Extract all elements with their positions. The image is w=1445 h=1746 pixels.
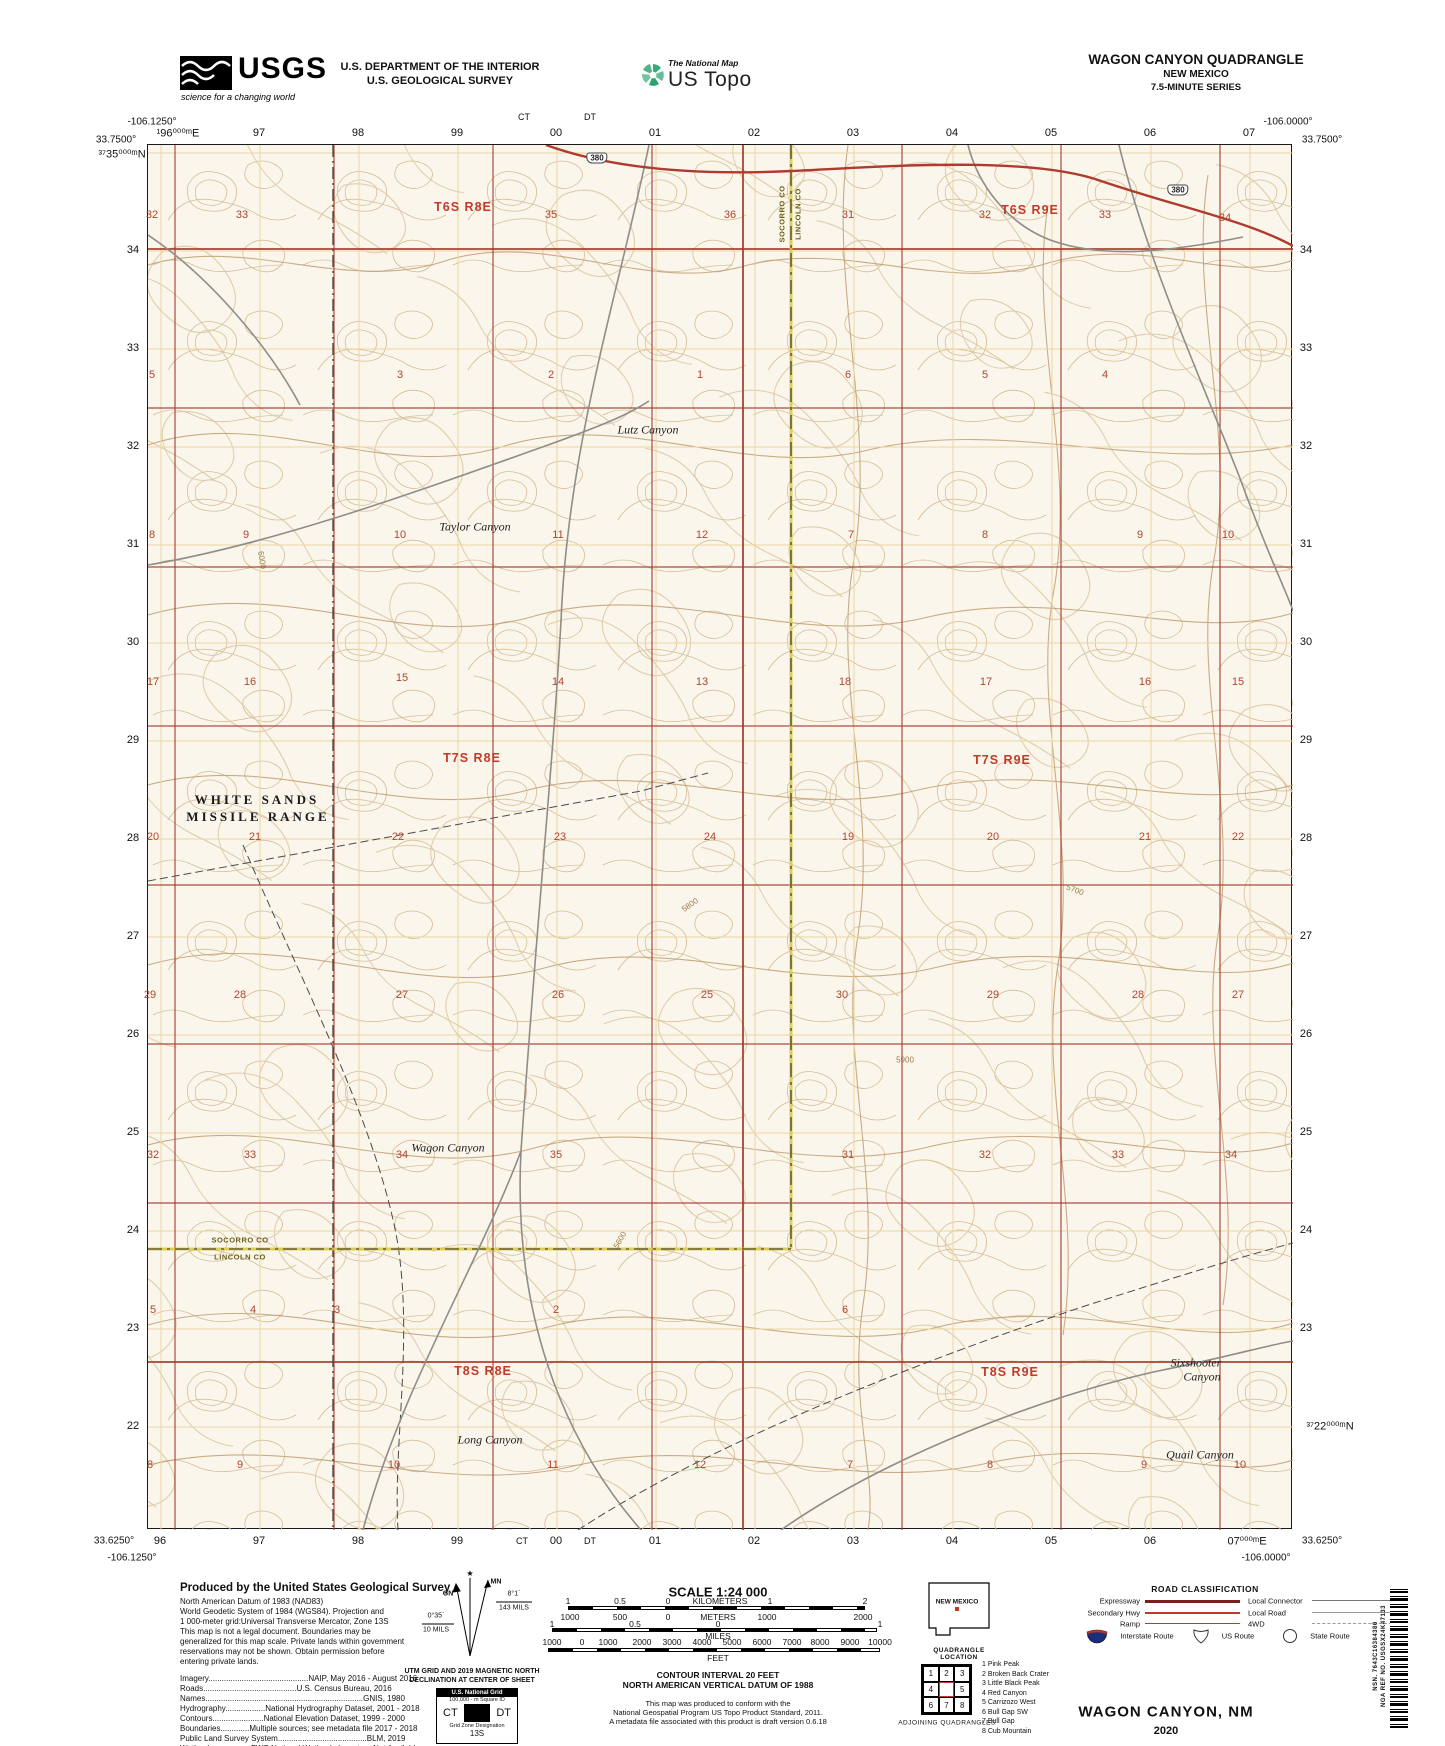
scale-ft-label: 0 bbox=[580, 1637, 585, 1647]
grid-label-bottom: 04 bbox=[946, 1535, 958, 1547]
us-route-label: US Route bbox=[1222, 1632, 1255, 1641]
scale-bar-feet bbox=[548, 1648, 880, 1652]
nsn-number: NSN. 7643C16384380 bbox=[1373, 1621, 1379, 1690]
grid-label-left: 31 bbox=[127, 538, 139, 550]
map-area bbox=[147, 144, 1292, 1529]
grid-label-left: 27 bbox=[127, 930, 139, 942]
scale-m-label: 1000 bbox=[561, 1612, 580, 1622]
vertical-datum-note: NORTH AMERICAN VERTICAL DATUM OF 1988 bbox=[623, 1680, 814, 1690]
grid-zone-id-bottom: CT bbox=[516, 1536, 528, 1546]
grid-label-top: 00 bbox=[550, 127, 562, 139]
usng-cell-ct: CT bbox=[437, 1707, 464, 1719]
scale-ft-label: 1000 bbox=[599, 1637, 618, 1647]
grid-label-right: 34 bbox=[1300, 244, 1312, 256]
us-route-shield-icon bbox=[1192, 1628, 1210, 1644]
mn-mils: 143 MILS bbox=[499, 1605, 529, 1612]
grid-label-bottom: 02 bbox=[748, 1535, 760, 1547]
road-classification-title: ROAD CLASSIFICATION bbox=[1151, 1584, 1259, 1594]
grid-label-right: 29 bbox=[1300, 734, 1312, 746]
nga-ref-number: NGA REF NO. USGSX24K47133 bbox=[1381, 1605, 1387, 1707]
quad-title-block: WAGON CANYON QUADRANGLE NEW MEXICO 7.5-M… bbox=[1046, 52, 1346, 93]
declination-diagram: ★ MN GN 0°35´ 10 MILS 8°1´ 143 MILS UTM … bbox=[392, 1568, 552, 1685]
agency-line2: U.S. GEOLOGICAL SURVEY bbox=[290, 74, 590, 88]
declination-arrows-icon: ★ bbox=[392, 1568, 552, 1660]
corner-coordinate: -106.1250° bbox=[127, 117, 176, 128]
grid-label-left: 33 bbox=[127, 342, 139, 354]
scale-ft-label: 3000 bbox=[663, 1637, 682, 1647]
grid-zone-id-bottom: DT bbox=[584, 1536, 596, 1546]
grid-label-bottom: 01 bbox=[649, 1535, 661, 1547]
local-connector-line bbox=[1312, 1600, 1392, 1601]
scale-km-label: 1 bbox=[566, 1596, 571, 1606]
scale-km-label: 2 bbox=[863, 1596, 868, 1606]
scale-mi-label: 1 bbox=[878, 1619, 883, 1629]
grid-label-right: 30 bbox=[1300, 636, 1312, 648]
national-map-pinwheel-icon bbox=[640, 62, 666, 88]
grid-label-left: 30 bbox=[127, 636, 139, 648]
usgs-tagline: science for a changing world bbox=[181, 92, 295, 102]
scale-ft-label: 6000 bbox=[753, 1637, 772, 1647]
quad-state: NEW MEXICO bbox=[1046, 69, 1346, 80]
map-graphics bbox=[148, 145, 1293, 1530]
usng-title: U.S. National Grid bbox=[437, 1689, 517, 1697]
usgs-topo-sheet: USGS science for a changing world U.S. D… bbox=[0, 0, 1445, 1746]
declination-caption: UTM GRID AND 2019 MAGNETIC NORTH DECLINA… bbox=[392, 1667, 552, 1685]
grid-label-bottom: 05 bbox=[1045, 1535, 1057, 1547]
gn-mils: 10 MILS bbox=[423, 1627, 449, 1634]
interstate-route-label: Interstate Route bbox=[1120, 1632, 1173, 1641]
grid-label-left: 26 bbox=[127, 1028, 139, 1040]
grid-label-right: ³⁷22⁰⁰⁰ᵐN bbox=[1306, 1420, 1353, 1433]
corner-coordinate: -106.0000° bbox=[1241, 1553, 1290, 1564]
contour-interval-note: CONTOUR INTERVAL 20 FEET bbox=[657, 1670, 780, 1680]
corner-coordinate: 33.7500° bbox=[96, 135, 136, 146]
grid-label-bottom: 03 bbox=[847, 1535, 859, 1547]
grid-label-top: 98 bbox=[352, 127, 364, 139]
scale-m-label: 500 bbox=[613, 1612, 627, 1622]
scale-title: SCALE 1:24 000 bbox=[669, 1585, 768, 1600]
state-label: NEW MEXICO bbox=[936, 1599, 979, 1606]
grid-label-top: 05 bbox=[1045, 127, 1057, 139]
adjoining-grid: 12345678 bbox=[921, 1664, 972, 1715]
secondary-hwy-line bbox=[1145, 1612, 1240, 1614]
grid-zone-id-top: CT bbox=[518, 112, 530, 122]
grid-label-top: 04 bbox=[946, 127, 958, 139]
grid-label-left: 25 bbox=[127, 1126, 139, 1138]
grid-label-top: 07 bbox=[1243, 127, 1255, 139]
scale-m-label: 0 bbox=[666, 1612, 671, 1622]
grid-label-left: 34 bbox=[127, 244, 139, 256]
corner-coordinate: 33.7500° bbox=[1302, 135, 1342, 146]
barcode bbox=[1390, 1586, 1408, 1728]
agency-line1: U.S. DEPARTMENT OF THE INTERIOR bbox=[290, 60, 590, 74]
usng-cell-dt: DT bbox=[490, 1707, 517, 1719]
state-route-label: State Route bbox=[1310, 1632, 1350, 1641]
grid-label-bottom: 99 bbox=[451, 1535, 463, 1547]
quadrangle-location-caption: QUADRANGLE LOCATION bbox=[923, 1647, 995, 1661]
expressway-line bbox=[1145, 1600, 1240, 1603]
mn-degrees: 8°1´ bbox=[508, 1591, 521, 1598]
grid-label-right: 26 bbox=[1300, 1028, 1312, 1040]
feet-word: FEET bbox=[707, 1653, 729, 1663]
grid-label-left: 24 bbox=[127, 1224, 139, 1236]
grid-label-top: 03 bbox=[847, 127, 859, 139]
scale-km-label: 0.5 bbox=[614, 1596, 626, 1606]
us-topo-logo: The National Map US Topo bbox=[668, 58, 752, 92]
usng-zone: 13S bbox=[437, 1729, 517, 1738]
grid-label-right: 28 bbox=[1300, 832, 1312, 844]
grid-label-right: 25 bbox=[1300, 1126, 1312, 1138]
scale-ft-label: 10000 bbox=[868, 1637, 892, 1647]
usgs-wave-icon bbox=[180, 56, 232, 90]
grid-label-top: 97 bbox=[253, 127, 265, 139]
corner-coordinate: -106.0000° bbox=[1263, 117, 1312, 128]
grid-label-bottom: 00 bbox=[550, 1535, 562, 1547]
us-topo-label: US Topo bbox=[668, 68, 752, 92]
grid-label-left: 22 bbox=[127, 1420, 139, 1432]
sheet-year: 2020 bbox=[1154, 1725, 1178, 1737]
grid-label-right: 24 bbox=[1300, 1224, 1312, 1236]
quad-series: 7.5-MINUTE SERIES bbox=[1046, 82, 1346, 93]
grid-label-right: 31 bbox=[1300, 538, 1312, 550]
mn-label: MN bbox=[491, 1579, 502, 1586]
grid-label-left: 32 bbox=[127, 440, 139, 452]
svg-text:★: ★ bbox=[466, 1569, 473, 1578]
grid-label-left: 28 bbox=[127, 832, 139, 844]
grid-label-bottom: 06 bbox=[1144, 1535, 1156, 1547]
usng-cells: CT DT bbox=[437, 1703, 517, 1723]
grid-label-top: 01 bbox=[649, 127, 661, 139]
scale-ft-label: 9000 bbox=[841, 1637, 860, 1647]
quadrangle-location: NEW MEXICO QUADRANGLE LOCATION bbox=[923, 1580, 995, 1661]
scale-m-label: 2000 bbox=[854, 1612, 873, 1622]
conformance-note: This map was produced to conform with th… bbox=[568, 1699, 868, 1726]
ramp-line bbox=[1145, 1623, 1240, 1624]
grid-label-left: 29 bbox=[127, 734, 139, 746]
grid-label-bottom: 96 bbox=[154, 1535, 166, 1547]
local-road-line bbox=[1312, 1612, 1392, 1613]
sheet-title: WAGON CANYON, NM bbox=[1078, 1704, 1253, 1721]
corner-coordinate: 33.6250° bbox=[94, 1536, 134, 1547]
grid-label-right: 32 bbox=[1300, 440, 1312, 452]
usng-box: U.S. National Grid 100,000 - m Square ID… bbox=[436, 1688, 518, 1744]
fourwd-line bbox=[1312, 1623, 1392, 1624]
agency-lines: U.S. DEPARTMENT OF THE INTERIOR U.S. GEO… bbox=[290, 60, 590, 88]
usgs-logo bbox=[180, 56, 232, 90]
grid-label-right: 23 bbox=[1300, 1322, 1312, 1334]
scale-ft-label: 8000 bbox=[811, 1637, 830, 1647]
grid-label-top: 06 bbox=[1144, 127, 1156, 139]
grid-label-bottom: 98 bbox=[352, 1535, 364, 1547]
grid-label-right: 33 bbox=[1300, 342, 1312, 354]
scale-m-label: METERS bbox=[700, 1612, 735, 1622]
grid-label-bottom: 97 bbox=[253, 1535, 265, 1547]
grid-label-top: 99 bbox=[451, 127, 463, 139]
adjoining-names: 1 Pink Peak2 Broken Back Crater3 Little … bbox=[982, 1660, 1049, 1736]
scale-bar-km bbox=[568, 1606, 865, 1610]
miles-word: MILES bbox=[705, 1631, 731, 1641]
scale-ft-label: 7000 bbox=[783, 1637, 802, 1647]
gn-degrees: 0°35´ bbox=[428, 1613, 445, 1620]
scale-ft-label: 2000 bbox=[633, 1637, 652, 1647]
scale-km-label: 1 bbox=[768, 1596, 773, 1606]
grid-zone-id-top: DT bbox=[584, 112, 596, 122]
quad-title: WAGON CANYON QUADRANGLE bbox=[1046, 52, 1346, 67]
grid-label-left: ³⁷35⁰⁰⁰ᵐN bbox=[98, 148, 145, 161]
corner-coordinate: -106.1250° bbox=[107, 1553, 156, 1564]
grid-label-left: 23 bbox=[127, 1322, 139, 1334]
new-mexico-outline-icon bbox=[925, 1580, 993, 1642]
national-map-label: The National Map bbox=[668, 58, 752, 68]
state-route-circle-icon bbox=[1282, 1628, 1298, 1644]
interstate-shield-icon bbox=[1085, 1628, 1109, 1644]
grid-label-right: 27 bbox=[1300, 930, 1312, 942]
grid-label-top: 02 bbox=[748, 127, 760, 139]
grid-label-top: ¹96⁰⁰⁰ᵐE bbox=[157, 127, 200, 140]
scale-m-label: 1000 bbox=[758, 1612, 777, 1622]
gn-label: GN bbox=[443, 1591, 454, 1598]
corner-coordinate: 33.6250° bbox=[1302, 1536, 1342, 1547]
grid-label-bottom: 07⁰⁰⁰ᵐE bbox=[1227, 1535, 1266, 1548]
